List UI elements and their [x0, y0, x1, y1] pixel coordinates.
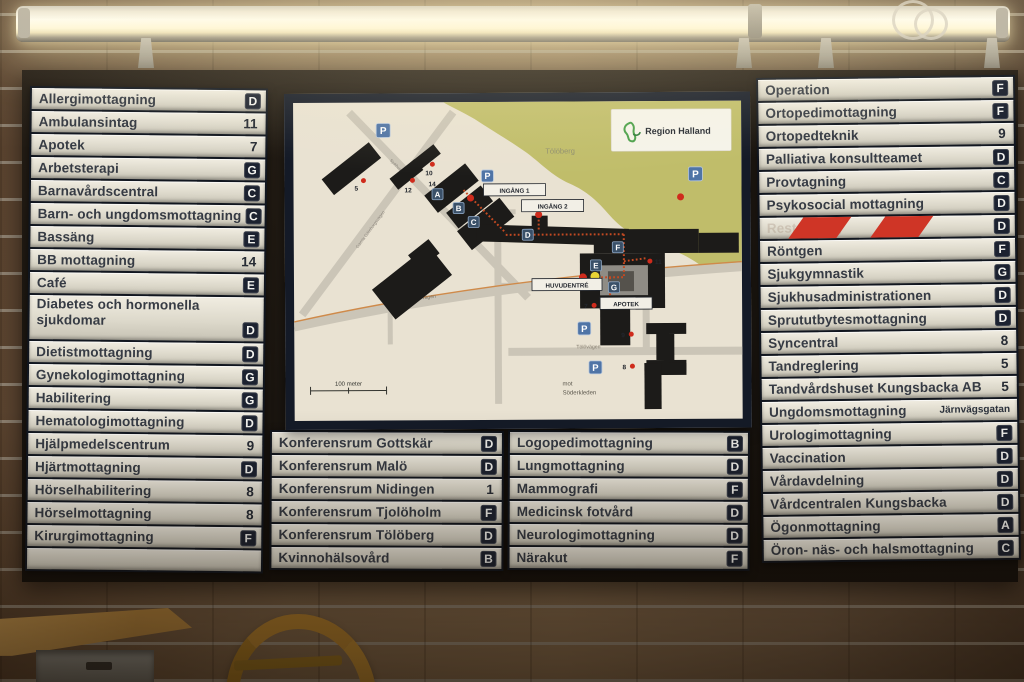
- wall-cable: [914, 8, 948, 40]
- directory-row: Psykosocial mottagningD: [759, 192, 1014, 216]
- lamp-tube: [16, 6, 1010, 42]
- department-label: Neurologimottagning: [517, 527, 655, 542]
- svg-text:INGÅNG 2: INGÅNG 2: [538, 204, 569, 211]
- department-label: Tandvårdshuset Kungsbacka AB: [769, 379, 982, 397]
- building-letter-badge: D: [994, 217, 1010, 233]
- svg-text:P: P: [692, 169, 699, 180]
- department-label: Konferensrum Tölöberg: [279, 527, 435, 543]
- location-number: 5: [1001, 356, 1012, 371]
- svg-text:E: E: [593, 261, 599, 270]
- department-label: Sjukgymnastik: [767, 266, 864, 282]
- building-letter-badge: G: [994, 263, 1010, 279]
- department-label: Ungdomsmottagning: [769, 403, 907, 420]
- building-letter-badge: B: [480, 550, 496, 566]
- directory-column-right: OperationFOrtopedimottagningFOrtopedtekn…: [756, 75, 1021, 563]
- department-label: Kvinnohälsovård: [278, 550, 389, 565]
- desk-handle: [86, 662, 112, 670]
- building-letter-badge: D: [727, 458, 743, 474]
- empty-slat: [27, 548, 261, 571]
- department-label: Vaccination: [770, 450, 846, 466]
- department-label: Hjälpmedelscentrum: [35, 436, 170, 452]
- directory-row: GynekologimottagningG: [29, 364, 263, 387]
- building-letter-badge: G: [244, 162, 260, 178]
- directory-row: SjukgymnastikG: [760, 261, 1015, 285]
- directory-row: ÖgonmottagningA: [763, 514, 1018, 538]
- svg-text:P: P: [592, 363, 599, 374]
- department-label: Konferensrum Nidingen: [279, 481, 435, 497]
- directory-row: BarnavårdscentralC: [31, 180, 265, 203]
- directory-row: VaccinationD: [763, 445, 1018, 469]
- department-label: Psykosocial mottagning: [766, 196, 924, 213]
- directory-row: BB mottagning14: [30, 249, 264, 272]
- svg-text:12: 12: [404, 187, 412, 194]
- directory-row: DietistmottagningD: [29, 341, 263, 364]
- svg-text:10: 10: [425, 170, 433, 177]
- department-label: Ortopedimottagning: [765, 104, 897, 121]
- directory-row: NärakutF: [510, 547, 748, 569]
- building-letter-badge: E: [243, 231, 259, 247]
- directory-row: SjukhusadministrationenD: [761, 284, 1016, 308]
- svg-text:Söderkleden: Söderkleden: [563, 390, 597, 396]
- svg-text:P: P: [581, 324, 588, 335]
- directory-row: ArbetsterapiG: [31, 157, 265, 180]
- location-number: 7: [250, 139, 261, 154]
- directory-row: Diabetes och hormonella sjukdomarD: [29, 295, 263, 341]
- directory-row: Palliativa konsultteametD: [759, 146, 1014, 170]
- building-letter-badge: D: [242, 322, 258, 338]
- lamp-endcap-right: [996, 8, 1008, 38]
- building-letter-badge: D: [481, 527, 497, 543]
- location-number: 9: [998, 126, 1009, 141]
- location-number: 9: [247, 438, 258, 453]
- department-label: Röntgen: [767, 243, 823, 259]
- location-number: 14: [241, 254, 259, 269]
- directory-row: Konferensrum Nidingen1: [272, 478, 502, 500]
- directory-row: Konferensrum TjolöholmF: [272, 501, 502, 523]
- location-number: 1: [486, 482, 497, 497]
- department-label: Sjukhusadministrationen: [768, 288, 932, 305]
- directory-row: MammografiF: [510, 478, 748, 500]
- directory-row: KirurgimottagningF: [27, 525, 261, 548]
- directory-row: Tandvårdshuset Kungsbacka AB5: [762, 376, 1017, 400]
- location-number: 5: [1001, 379, 1012, 394]
- department-label: Barn- och ungdomsmottagning: [38, 206, 242, 223]
- department-label: Närakut: [517, 550, 568, 565]
- building-letter-badge: F: [481, 504, 497, 520]
- building-letter-badge: D: [245, 93, 261, 109]
- svg-text:C: C: [471, 218, 477, 227]
- directory-row: Vårdcentralen KungsbackaD: [763, 491, 1018, 515]
- directory-row: Ortopedteknik9: [759, 123, 1014, 147]
- directory-row: UngdomsmottagningJärnvägsgatan: [762, 399, 1017, 423]
- chair-backrest: [226, 614, 377, 682]
- region-halland-logo: Region Halland: [611, 109, 731, 152]
- directory-row: SprututbytesmottagningD: [761, 307, 1016, 331]
- department-label: Operation: [765, 82, 830, 98]
- directory-row: OperationF: [758, 77, 1013, 101]
- location-text: Järnvägsgatan: [939, 404, 1012, 416]
- building-letter-badge: B: [727, 435, 743, 451]
- department-label: Diabetes och hormonella sjukdomar: [36, 295, 238, 330]
- direction-note: mot Söderkleden: [563, 381, 597, 396]
- building-letter-badge: D: [995, 309, 1011, 325]
- department-label: Urologimottagning: [769, 426, 892, 442]
- building-letter-badge: F: [996, 424, 1012, 440]
- svg-text:G: G: [611, 283, 617, 292]
- building-letter-badge: F: [992, 102, 1008, 118]
- department-label: Tandreglering: [768, 358, 858, 374]
- directory-row: Medicinsk fotvårdD: [510, 501, 748, 523]
- svg-text:Gamla Göteborgsvägen: Gamla Göteborgsvägen: [355, 209, 387, 249]
- department-label: Barnavårdscentral: [38, 183, 158, 199]
- svg-text:P: P: [484, 171, 490, 181]
- svg-text:11: 11: [655, 259, 662, 266]
- building-letter-badge: F: [240, 530, 256, 546]
- building-letter-badge: D: [995, 286, 1011, 302]
- department-label: Konferensrum Gottskär: [279, 435, 433, 451]
- wooden-chair: [218, 596, 358, 682]
- department-label: Kirurgimottagning: [34, 528, 154, 544]
- directory-row: RöntgenF: [760, 238, 1015, 262]
- directory-row: Konferensrum MalöD: [272, 455, 502, 477]
- directory-row: Öron- näs- och halsmottagningC: [764, 537, 1019, 561]
- building-letter-badge: D: [727, 504, 743, 520]
- directory-row: UrologimottagningF: [762, 422, 1017, 446]
- svg-text:F: F: [615, 243, 620, 252]
- department-label: Hörselmottagning: [34, 505, 151, 521]
- directory-row: NeurologimottagningD: [510, 524, 748, 546]
- directory-row: HabiliteringG: [29, 387, 263, 410]
- location-number: 8: [246, 507, 257, 522]
- directory-row: Syncentral8: [761, 330, 1016, 354]
- directory-row: Ambulansintag11: [32, 111, 266, 134]
- svg-text:mot: mot: [563, 381, 573, 387]
- directory-row: RestaurangD: [760, 215, 1015, 239]
- department-label: Palliativa konsultteamet: [766, 150, 922, 167]
- directory-row: Tandreglering5: [761, 353, 1016, 377]
- svg-text:7: 7: [584, 303, 588, 310]
- scale-label: 100 meter: [335, 382, 362, 388]
- location-number: 8: [1001, 333, 1012, 348]
- building-letter-badge: C: [998, 539, 1014, 555]
- building-letter-badge: D: [997, 447, 1013, 463]
- hazard-tape-stripe: [786, 215, 853, 239]
- building-letter-badge: D: [242, 346, 258, 362]
- directory-row: OrtopedimottagningF: [758, 100, 1013, 124]
- svg-text:Tölövägen: Tölövägen: [576, 344, 600, 350]
- building-letter-badge: C: [993, 171, 1009, 187]
- department-label: Hörselhabilitering: [35, 482, 152, 498]
- directory-row: KvinnohälsovårdB: [271, 547, 501, 569]
- directory-row: ProvtagningC: [759, 169, 1014, 193]
- directory-column-left: AllergimottagningDAmbulansintag11Apotek7…: [25, 86, 268, 573]
- building-letter-badge: G: [242, 392, 258, 408]
- directory-column-middle: LogopedimottagningBLungmottagningDMammog…: [508, 430, 750, 571]
- building-letter-badge: F: [727, 550, 743, 566]
- directory-row: HematologimottagningD: [28, 410, 262, 433]
- building-letter-badge: D: [481, 435, 497, 451]
- directory-row: Hjälpmedelscentrum9: [28, 433, 262, 456]
- department-label: Bassäng: [37, 229, 94, 245]
- department-label: BB mottagning: [37, 252, 135, 268]
- location-number: 11: [243, 116, 260, 131]
- department-label: Hjärtmottagning: [35, 459, 141, 475]
- directory-row: Hörselmottagning8: [27, 502, 261, 525]
- directory-row: Apotek7: [31, 134, 265, 157]
- building-letter-badge: D: [241, 415, 257, 431]
- svg-text:P: P: [380, 126, 387, 137]
- svg-text:5: 5: [354, 186, 358, 193]
- department-label: Apotek: [38, 137, 85, 152]
- site-map: Tölöberg Gamla Göteborgsvägen Sjukhusväg…: [293, 101, 743, 421]
- department-label: Vårdavdelning: [770, 473, 865, 489]
- building-letter-badge: D: [997, 470, 1013, 486]
- directory-column-conference: Konferensrum GottskärDKonferensrum MalöD…: [269, 430, 504, 571]
- department-label: Konferensrum Malö: [279, 458, 408, 474]
- department-label: Konferensrum Tjolöholm: [279, 504, 442, 520]
- department-label: Arbetsterapi: [38, 160, 119, 176]
- directory-row: BassängE: [30, 226, 264, 249]
- department-label: Allergimottagning: [39, 91, 156, 107]
- directory-row: Konferensrum GottskärD: [272, 432, 502, 454]
- building-letter-badge: F: [992, 79, 1008, 95]
- building-letter-badge: C: [244, 185, 260, 201]
- directory-row: Konferensrum TölöbergD: [271, 524, 501, 546]
- department-label: Hematologimottagning: [35, 413, 184, 430]
- building-letter-badge: D: [727, 527, 743, 543]
- building-letter-badge: D: [241, 461, 257, 477]
- building-letter-badge: A: [997, 516, 1013, 532]
- department-label: Sprututbytesmottagning: [768, 311, 927, 328]
- building-letter-badge: D: [997, 493, 1013, 509]
- building-letter-badge: E: [243, 277, 259, 293]
- svg-text:A: A: [435, 190, 441, 199]
- department-label: Logopedimottagning: [517, 435, 653, 450]
- directory-row: HjärtmottagningD: [28, 456, 262, 479]
- building-letter-badge: F: [994, 240, 1010, 256]
- svg-text:B: B: [456, 204, 462, 213]
- hazard-tape-stripe: [868, 215, 935, 239]
- building-letter-badge: D: [993, 194, 1009, 210]
- department-label: Dietistmottagning: [36, 344, 153, 360]
- department-label: Mammografi: [517, 481, 598, 496]
- department-label: Gynekologimottagning: [36, 367, 185, 384]
- lamp-endcap-left: [18, 8, 30, 38]
- building-letter-badge: G: [242, 369, 258, 385]
- directory-row: AllergimottagningD: [32, 88, 266, 111]
- department-label: Syncentral: [768, 335, 838, 351]
- directory-row: Barn- och ungdomsmottagningC: [31, 203, 265, 226]
- scale-bar: [311, 386, 387, 394]
- department-label: Habilitering: [36, 390, 112, 406]
- location-number: 8: [246, 484, 257, 499]
- svg-text:D: D: [525, 231, 531, 240]
- department-label: Ortopedteknik: [766, 128, 859, 144]
- directory-row: LungmottagningD: [510, 455, 748, 477]
- department-label: Ögonmottagning: [770, 519, 880, 535]
- department-label: Café: [37, 275, 67, 290]
- lamp-joint: [748, 4, 762, 38]
- svg-text:14: 14: [428, 181, 436, 188]
- building-letter-badge: C: [245, 208, 261, 224]
- building-letter-badge: D: [481, 458, 497, 474]
- svg-text:8: 8: [622, 364, 626, 371]
- department-label: Medicinsk fotvård: [517, 504, 634, 519]
- directory-row: LogopedimottagningB: [510, 432, 748, 454]
- site-map-panel: Tölöberg Gamla Göteborgsvägen Sjukhusväg…: [284, 92, 752, 430]
- department-label: Provtagning: [766, 174, 846, 190]
- svg-text:HUVUDENTRÉ: HUVUDENTRÉ: [545, 281, 588, 289]
- department-label: Öron- näs- och halsmottagning: [771, 540, 974, 557]
- svg-text:APOTEK: APOTEK: [613, 301, 639, 308]
- directory-row: Hörselhabilitering8: [28, 479, 262, 502]
- department-label: Vårdcentralen Kungsbacka: [770, 495, 947, 512]
- svg-text:9: 9: [621, 332, 625, 339]
- building-letter-badge: D: [993, 148, 1009, 164]
- photo-scene: AllergimottagningDAmbulansintag11Apotek7…: [0, 0, 1024, 682]
- department-label: Lungmottagning: [517, 458, 625, 473]
- svg-text:INGÅNG 1: INGÅNG 1: [500, 188, 531, 195]
- building-letter-badge: F: [727, 481, 743, 497]
- region-halland-text: Region Halland: [645, 126, 711, 136]
- directory-row: CaféE: [30, 272, 264, 295]
- hill-label: Tölöberg: [545, 146, 575, 155]
- department-label: Ambulansintag: [39, 114, 138, 130]
- directory-row: VårdavdelningD: [763, 468, 1018, 492]
